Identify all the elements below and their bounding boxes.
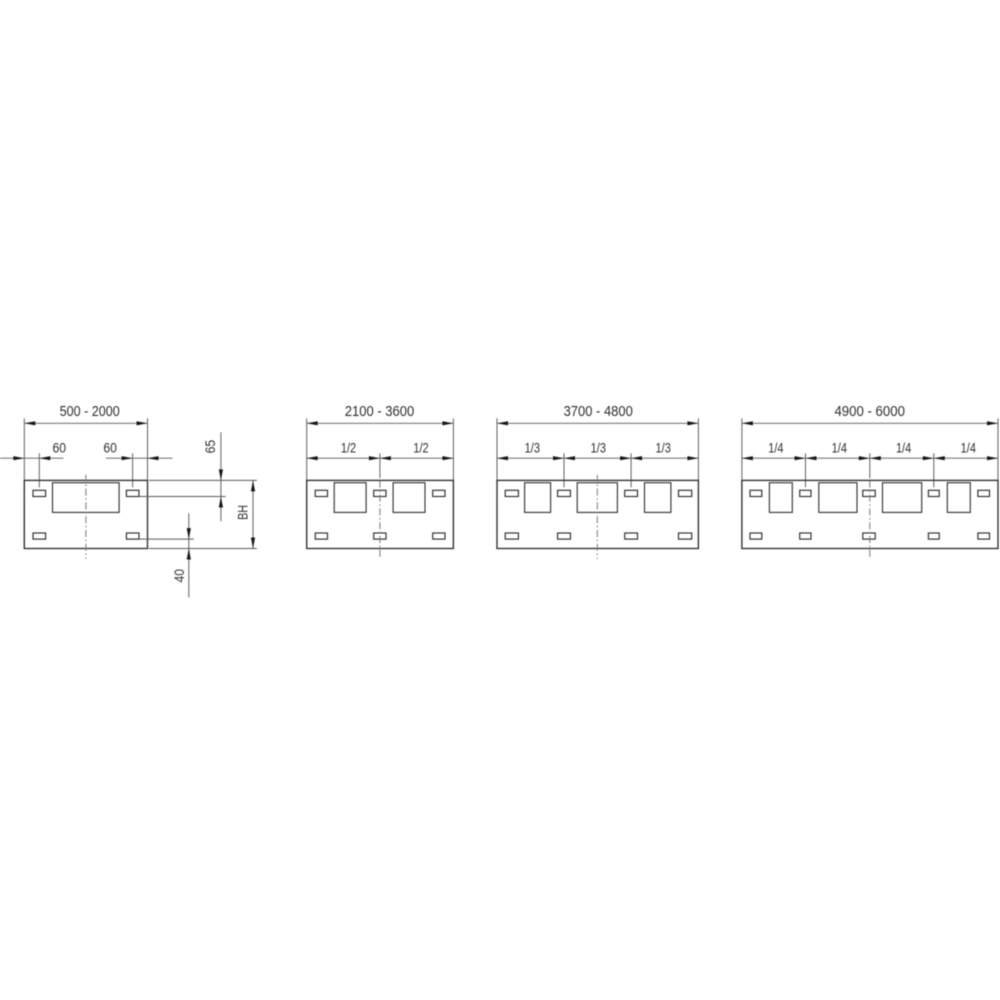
svg-text:65: 65: [203, 440, 218, 454]
svg-text:1/4: 1/4: [896, 441, 912, 456]
svg-text:2100 - 3600: 2100 - 3600: [345, 403, 415, 420]
svg-text:1/3: 1/3: [525, 441, 540, 456]
svg-text:1/2: 1/2: [341, 441, 356, 456]
svg-text:60: 60: [53, 441, 67, 456]
svg-text:3700 - 4800: 3700 - 4800: [564, 403, 633, 420]
svg-text:500 - 2000: 500 - 2000: [60, 403, 120, 420]
svg-text:1/4: 1/4: [832, 441, 848, 456]
svg-text:1/4: 1/4: [961, 441, 977, 456]
svg-text:60: 60: [103, 441, 117, 456]
svg-text:BH: BH: [235, 505, 250, 520]
svg-text:1/3: 1/3: [591, 441, 606, 456]
svg-text:1/3: 1/3: [656, 441, 671, 456]
svg-text:4900 - 6000: 4900 - 6000: [834, 403, 905, 420]
svg-text:40: 40: [172, 569, 187, 583]
svg-text:1/2: 1/2: [413, 441, 428, 456]
svg-text:1/4: 1/4: [768, 441, 784, 456]
